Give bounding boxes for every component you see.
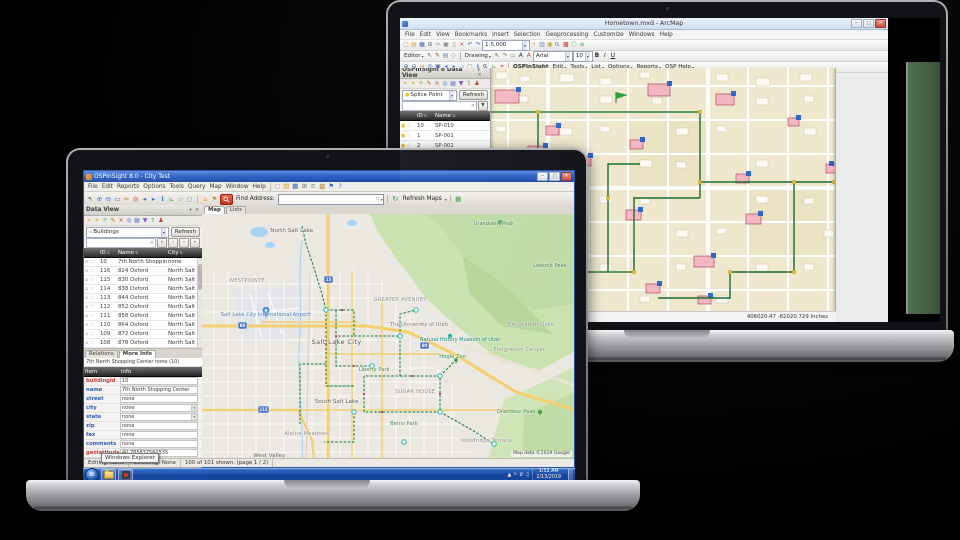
field-label-buildingid: buildingid <box>86 378 120 384</box>
locate-icon[interactable]: ◎ <box>125 217 133 225</box>
building-icon: ⌂ <box>85 340 88 346</box>
map-label: Grandeur Peak <box>497 409 536 415</box>
favorite-icon: ☆ <box>406 133 410 139</box>
attribute-row: zipnone <box>84 422 202 431</box>
table-rows: ⌂☆107th North Shoppingnone⌂☆116824 Oxfor… <box>84 258 202 348</box>
panel-pin-close-icons[interactable]: ▾ ✕ <box>478 68 488 78</box>
filter-icon[interactable]: ▼ <box>141 217 149 225</box>
building-icon: ⌂ <box>85 295 88 301</box>
add-record-icon[interactable]: ＋ <box>101 217 109 225</box>
print-icon[interactable]: ⊞ <box>300 182 309 191</box>
selected-record-header: 7th North Shopping Center none (10) <box>84 358 202 367</box>
splice-point-icon: ● <box>401 123 405 129</box>
front-laptop-screen: OSPInSight 8.0 - City Test ─ □ ✕ FileEdi… <box>83 170 575 482</box>
field-label-city: city <box>86 405 120 411</box>
status-segment: 100 of 101 shown. (page 1 / 2) <box>181 459 273 467</box>
column-header-city[interactable]: City⇅ <box>167 250 202 256</box>
arcmap-editor-toolbar: Editor▾ ↖✎▤◇ Drawing▾ ↖↷▭AA Arial▾ 10▾ <box>400 51 888 62</box>
field-value-name[interactable]: 7th North Shopping Center <box>120 386 198 394</box>
explorer-tooltip: Windows Explorer <box>101 453 159 463</box>
help-icon[interactable]: ? <box>336 182 345 191</box>
panel-title: OSPInSight 8 Data View <box>402 68 478 79</box>
menu-tools[interactable]: Tools <box>168 184 186 190</box>
bold-button[interactable]: B <box>593 52 601 60</box>
map-labels: North Salt LakeGrandview PeakLookout Pea… <box>202 214 574 459</box>
italic-button[interactable]: I <box>601 52 609 60</box>
front-laptop-notch <box>284 480 370 489</box>
map-scale-value: 1:5,000 <box>485 42 506 48</box>
table-row[interactable]: ⌂☆116824 OxfordNorth Salt Lake <box>84 267 202 276</box>
menu-customize[interactable]: Customize <box>591 32 625 38</box>
table-row[interactable]: ⌂☆114838 OxfordNorth Salt Lake <box>84 285 202 294</box>
attribute-row: citynone▾ <box>84 404 202 413</box>
field-label-comments: comments <box>86 441 120 447</box>
last-page-button[interactable]: » <box>190 238 200 248</box>
measure-icon[interactable]: ⊾ <box>167 195 176 204</box>
zoom-to-icon[interactable]: ⌖ <box>85 217 93 225</box>
new-map-icon[interactable]: ▢ <box>402 41 410 49</box>
dropdown-arrow-icon: ▾ <box>191 414 197 420</box>
zoom-box-icon[interactable]: ▭ <box>113 195 122 204</box>
map-label: Liberty Park <box>359 367 390 373</box>
map-label: Hogle Zoo <box>439 354 466 360</box>
text-icon[interactable]: A <box>517 52 525 60</box>
close-button[interactable]: ✕ <box>875 19 886 28</box>
editor-menu[interactable]: Editor▾ <box>402 53 426 59</box>
print-icon[interactable]: ⊞ <box>426 41 434 49</box>
locate-flag-icon[interactable]: ⚑ <box>210 195 219 204</box>
user-icon[interactable]: ♟ <box>157 217 165 225</box>
menu-windows[interactable]: Windows <box>627 32 657 38</box>
sort-icon: ⇅ <box>424 113 427 118</box>
delete-record-icon[interactable]: × <box>433 80 441 88</box>
column-header-name[interactable]: Name⇅ <box>434 113 490 119</box>
menu-insert[interactable]: Insert <box>490 32 511 38</box>
python-icon[interactable]: ≡ <box>578 41 586 49</box>
cut-icon[interactable]: ✂ <box>434 41 442 49</box>
menu-selection[interactable]: Selection <box>512 32 543 38</box>
paste-icon[interactable]: ▯ <box>450 41 458 49</box>
open-icon[interactable]: ▤ <box>282 182 291 191</box>
relations-moreinfo-tabs: RelationsMore Info <box>84 348 202 358</box>
front-laptop-base <box>26 480 640 511</box>
arcmap-standard-toolbar: ▢▤▦⊞✂▣▯×↶↷ 1:5,000 ▾ ＋▥▣⚲▩⬡≡ <box>400 40 888 51</box>
building-icon: ⌂ <box>85 322 88 328</box>
previous-extent-icon[interactable]: ◂ <box>140 195 149 204</box>
open-icon[interactable]: ▤ <box>410 41 418 49</box>
identify-icon[interactable]: ℹ <box>158 195 167 204</box>
close-button[interactable]: ✕ <box>561 172 572 181</box>
favorite-icon: ☆ <box>89 259 93 265</box>
font-color-icon[interactable]: A <box>525 52 533 60</box>
field-label-zip: zip <box>86 423 120 429</box>
zoom-in-icon[interactable]: ⊕ <box>95 195 104 204</box>
filter-input[interactable]: × <box>402 101 477 111</box>
attribute-row: commentsnone <box>84 440 202 449</box>
menu-edit[interactable]: Edit <box>100 184 115 190</box>
full-extent-icon[interactable]: ◎ <box>131 195 140 204</box>
redo-icon[interactable]: ↷ <box>474 41 482 49</box>
refresh-button[interactable]: Refresh <box>459 90 488 100</box>
favorite-icon: ☆ <box>89 340 93 346</box>
map-label: Alpine Meadows <box>284 431 329 437</box>
ospinsight-titlebar: OSPInSight 8.0 - City Test ─ □ ✕ <box>84 171 574 182</box>
user-icon[interactable]: ♟ <box>473 80 481 88</box>
find-address-label: Find Address: <box>234 196 277 202</box>
map-scale-combo[interactable]: 1:5,000 ▾ <box>482 40 530 51</box>
building-icon: ⌂ <box>85 304 88 310</box>
favorite-icon: ☆ <box>89 313 93 319</box>
copy-icon[interactable]: ▣ <box>442 41 450 49</box>
data-view-toolbar: ⌖✦＋✎×◎▦▼⇪♟ <box>400 79 490 89</box>
sort-icon: ⇅ <box>107 250 110 255</box>
menu-query[interactable]: Query <box>186 184 208 190</box>
back-screen-wallpaper-strip <box>906 62 940 314</box>
sort-icon: ⇅ <box>180 250 183 255</box>
field-value-fax[interactable]: none <box>120 431 198 439</box>
delete-icon[interactable]: × <box>458 41 466 49</box>
coordinates-readout: 406020.47 -82020.729 Inches <box>747 314 828 320</box>
sort-icon: ⇅ <box>452 113 455 118</box>
favorite-icon: ☆ <box>89 286 93 292</box>
ospinsight-window-title: OSPInSight 8.0 - City Test <box>94 173 170 180</box>
layer-combo[interactable]: ⌂ Buildings▾ <box>86 227 169 238</box>
ospinsight-app-icon <box>86 174 92 180</box>
first-page-button[interactable]: « <box>157 238 167 248</box>
tab-more-info[interactable]: More Info <box>119 350 156 358</box>
favorite-icon: ☆ <box>89 268 93 274</box>
building-icon: ⌂ <box>89 229 92 235</box>
map-label: Salt Lake City <box>312 338 362 346</box>
field-label-state: state <box>86 414 120 420</box>
drawing-menu[interactable]: Drawing▾ <box>463 53 493 59</box>
field-label-fax: fax <box>86 432 120 438</box>
scene: Hometown.mxd - ArcMap ─ □ ✕ FileEditView… <box>0 0 960 540</box>
dropdown-arrow-icon: ▾ <box>445 197 447 202</box>
menu-edit[interactable]: Edit <box>418 32 433 38</box>
menu-file[interactable]: File <box>86 184 100 190</box>
select-elements-icon[interactable]: ↖ <box>493 52 501 60</box>
filter-icon[interactable]: ▼ <box>457 80 465 88</box>
table-row[interactable]: ⌂☆107th North Shoppingnone <box>84 258 202 267</box>
find-address-input[interactable]: × ▾ <box>278 194 384 205</box>
table-header: ID⇅Name⇅ <box>400 111 490 121</box>
maximize-button[interactable]: □ <box>863 19 874 28</box>
slc-map[interactable]: 15 80 215 80 North Salt LakeGrandview Pe… <box>202 214 574 459</box>
map-label: Lookout Peak <box>533 263 566 269</box>
add-record-icon[interactable]: ＋ <box>417 80 425 88</box>
front-laptop-bezel: OSPInSight 8.0 - City Test ─ □ ✕ FileEdi… <box>68 150 586 484</box>
map-label: Natural History Museum of Utah <box>420 337 500 343</box>
panel-title: Data View <box>86 207 119 213</box>
sort-icon: ⇅ <box>135 250 138 255</box>
table-header: ID⇅Name⇅City⇅ <box>84 248 202 258</box>
field-value-state[interactable]: none▾ <box>120 413 198 421</box>
table-row[interactable]: ●☆1SP-001 <box>400 131 490 141</box>
favorite-icon: ☆ <box>89 295 93 301</box>
front-laptop: OSPInSight 8.0 - City Test ─ □ ✕ FileEdi… <box>66 148 588 486</box>
splice-point-icon: ● <box>401 133 405 139</box>
map-tools-icon[interactable]: ▦ <box>454 195 463 204</box>
select-arrow-icon[interactable]: ↖ <box>86 195 95 204</box>
flash-icon[interactable]: ✦ <box>409 80 417 88</box>
table-row[interactable]: ⌂☆110864 OxfordNorth Salt Lake <box>84 321 202 330</box>
menu-reports[interactable]: Reports <box>115 184 141 190</box>
rotate-icon[interactable]: ↷ <box>501 52 509 60</box>
font-size-combo[interactable]: 10▾ <box>573 51 593 62</box>
dropdown-arrow-icon: ▾ <box>522 41 527 50</box>
rectangle-icon[interactable]: ▭ <box>509 52 517 60</box>
table-icon[interactable]: ▦ <box>133 217 141 225</box>
building-icon: ⌂ <box>85 331 88 337</box>
attribute-row: statenone▾ <box>84 413 202 422</box>
legend-icon[interactable]: ▥ <box>318 182 327 191</box>
model-builder-icon[interactable]: ⬡ <box>570 41 578 49</box>
create-features-panel: Create Features ▾ ✕ ▥ <Search> ▾ Access … <box>835 68 836 312</box>
favorite-icon: ☆ <box>89 331 93 337</box>
column-header-name[interactable]: Name⇅ <box>117 250 167 256</box>
map-label: Salt Lake City International Airport <box>221 312 311 318</box>
add-data-icon[interactable]: ＋ <box>530 41 538 49</box>
clear-selection-icon[interactable]: ▢ <box>185 195 194 204</box>
dropdown-arrow-icon: ▾ <box>191 405 197 411</box>
map-label: SUGAR HOUSE <box>395 389 435 395</box>
tab-lists[interactable]: Lists <box>226 206 246 214</box>
favorite-icon: ☆ <box>89 304 93 310</box>
locate-building-icon[interactable]: ⌂ <box>201 195 210 204</box>
column-header-item: Item <box>84 369 120 375</box>
table-row[interactable]: ⌂☆115830 OxfordNorth Salt Lake <box>84 276 202 285</box>
column-header-info: Info <box>120 369 202 375</box>
menu-bookmarks[interactable]: Bookmarks <box>453 32 489 38</box>
edit-record-icon[interactable]: ✎ <box>109 217 117 225</box>
export-icon[interactable]: ⇪ <box>465 80 473 88</box>
tab-relations[interactable]: Relations <box>85 350 118 358</box>
field-value-street[interactable]: none <box>120 395 198 403</box>
arcmap-menubar: FileEditViewBookmarksInsertSelectionGeop… <box>400 30 888 40</box>
folder-icon <box>104 471 114 479</box>
attribute-row: name7th North Shopping Center <box>84 386 202 395</box>
arcmap-titlebar: Hometown.mxd - ArcMap ─ □ ✕ <box>400 18 888 30</box>
map-label: North Salt Lake <box>270 228 313 234</box>
next-page-button[interactable]: › <box>179 238 189 248</box>
front-laptop-camera-icon <box>326 155 329 158</box>
flash-icon[interactable]: ✦ <box>93 217 101 225</box>
map-label: Grandview Peak <box>474 221 514 227</box>
building-icon: ⌂ <box>85 277 88 283</box>
menu-help[interactable]: Help <box>251 184 268 190</box>
field-value-comments[interactable]: none <box>120 440 198 448</box>
item-info-header: ItemInfo <box>84 367 202 377</box>
column-header-id[interactable]: ID⇅ <box>99 250 117 256</box>
attribute-row: faxnone <box>84 431 202 440</box>
table-row[interactable]: ⌂☆111858 OxfordNorth Salt Lake <box>84 312 202 321</box>
menu-map[interactable]: Map <box>207 184 223 190</box>
new-icon[interactable]: ▢ <box>273 182 282 191</box>
refresh-maps-icon: ↻ <box>391 195 400 203</box>
zoom-out-icon[interactable]: ⊖ <box>104 195 113 204</box>
font-combo[interactable]: Arial▾ <box>533 51 573 62</box>
menu-window[interactable]: Window <box>224 184 251 190</box>
splice-point-icon: ● <box>405 92 409 98</box>
map-label: South Salt Lake <box>315 399 359 405</box>
field-value-buildingid[interactable]: 10 <box>120 377 198 385</box>
layer-combo[interactable]: ● Splice Point▾ <box>402 90 457 101</box>
table-row[interactable]: ⌂☆108878 OxfordNorth Salt Lake <box>84 339 202 348</box>
zoom-to-icon[interactable]: ⌖ <box>401 80 409 88</box>
building-icon: ⌂ <box>85 268 88 274</box>
app-icon <box>122 471 130 479</box>
layers-icon[interactable]: ≡ <box>309 182 318 191</box>
bookmark-icon[interactable]: ⚑ <box>327 182 336 191</box>
favorite-icon: ☆ <box>89 277 93 283</box>
pan-icon[interactable]: ↔ <box>122 195 131 204</box>
refresh-maps-button[interactable]: Refresh Maps <box>401 196 444 202</box>
table-row[interactable]: ⌂☆109872 OxfordNorth Salt Lake <box>84 330 202 339</box>
save-icon[interactable]: ▦ <box>291 182 300 191</box>
minimize-button[interactable]: ─ <box>851 19 862 28</box>
delete-record-icon[interactable]: × <box>117 217 125 225</box>
back-laptop-camera-icon <box>666 7 669 10</box>
toc-icon[interactable]: ▥ <box>538 41 546 49</box>
table-row[interactable]: ⌂☆112852 OxfordNorth Salt Lake <box>84 303 202 312</box>
underline-button[interactable]: U <box>609 52 617 60</box>
menu-help[interactable]: Help <box>658 32 675 38</box>
edit-record-icon[interactable]: ✎ <box>425 80 433 88</box>
dropdown-arrow-icon: ▾ <box>381 197 383 202</box>
map-label: Berns Park <box>390 421 418 427</box>
map-label: The University of Utah <box>390 322 448 328</box>
find-address-button[interactable]: ⚲ <box>220 194 233 205</box>
map-label: Emigration Oaks <box>508 322 554 328</box>
arcmap-window-title: Hometown.mxd - ArcMap <box>400 20 888 27</box>
data-view-toolbar: ⌖✦＋✎×◎▦▼⇪♟ <box>84 216 202 226</box>
locate-icon[interactable]: ◎ <box>441 80 449 88</box>
menu-options[interactable]: Options <box>141 184 167 190</box>
map-label: Emigration Canyon <box>493 347 546 353</box>
table-icon[interactable]: ▦ <box>449 80 457 88</box>
building-icon: ⌂ <box>85 313 88 319</box>
attribute-row: streetnone <box>84 395 202 404</box>
previous-page-button[interactable]: ‹ <box>168 238 178 248</box>
export-icon[interactable]: ⇪ <box>149 217 157 225</box>
filter-input[interactable]: × <box>86 238 156 248</box>
filter-icon[interactable]: ▼ <box>478 101 488 111</box>
refresh-button[interactable]: Refresh <box>171 227 200 237</box>
select-features-icon[interactable]: ▱ <box>176 195 185 204</box>
building-icon: ⌂ <box>85 286 88 292</box>
favorite-icon: ☆ <box>406 123 410 129</box>
save-icon[interactable]: ▦ <box>418 41 426 49</box>
snapping-icon[interactable]: ◇ <box>450 52 458 60</box>
menu-view[interactable]: View <box>434 32 452 38</box>
field-value-city[interactable]: none▾ <box>120 404 198 412</box>
field-value-zip[interactable]: none <box>120 422 198 430</box>
data-view-panel: Data View ▾ ✕ ⌖✦＋✎×◎▦▼⇪♟ ⌂ Buildings▾ Re… <box>84 205 203 459</box>
back-laptop-notch <box>624 330 710 339</box>
menu-geoprocessing[interactable]: Geoprocessing <box>543 32 590 38</box>
map-attribution: Map data ©2019 Google <box>511 451 572 457</box>
map-label: Woodridge Terrace <box>460 438 512 444</box>
next-extent-icon[interactable]: ▸ <box>149 195 158 204</box>
table-row[interactable]: ●☆10SP-010 <box>400 121 490 131</box>
maximize-button[interactable]: □ <box>549 172 560 181</box>
edit-tool-icon[interactable]: ↖ <box>426 52 434 60</box>
favorite-icon: ☆ <box>89 322 93 328</box>
field-label-street: street <box>86 396 120 402</box>
ospinsight-menubar: FileEditReportsOptionsToolsQueryMapWindo… <box>84 182 574 192</box>
create-features-icon[interactable]: ✎ <box>434 52 442 60</box>
map-label: GREATER AVENUES <box>374 297 427 303</box>
map-label: WESTPOINTE <box>229 278 265 284</box>
building-icon: ⌂ <box>85 259 88 265</box>
map-workspace: MapLists <box>202 205 574 459</box>
tab-map[interactable]: Map <box>204 206 225 214</box>
attributes-icon[interactable]: ▤ <box>442 52 450 60</box>
column-header-id[interactable]: ID⇅ <box>416 113 434 119</box>
ospinsight-window: OSPInSight 8.0 - City Test ─ □ ✕ FileEdi… <box>83 170 575 468</box>
panel-pin-close-icons[interactable]: ▾ ✕ <box>189 208 200 213</box>
undo-icon[interactable]: ↶ <box>466 41 474 49</box>
ospinsight-body: Data View ▾ ✕ ⌖✦＋✎×◎▦▼⇪♟ ⌂ Buildings▾ Re… <box>84 205 574 459</box>
field-label-name: name <box>86 387 120 393</box>
attribute-row: buildingid10 <box>84 377 202 386</box>
table-row[interactable]: ⌂☆113844 OxfordNorth Salt Lake <box>84 294 202 303</box>
menu-file[interactable]: File <box>403 32 417 38</box>
volume-icon[interactable]: ♫ <box>524 472 530 478</box>
minimize-button[interactable]: ─ <box>537 172 548 181</box>
